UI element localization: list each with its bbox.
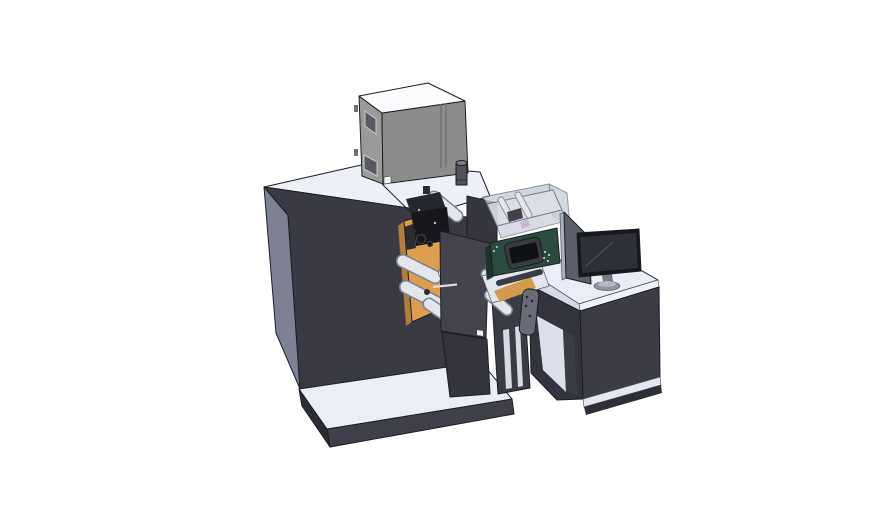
print-head-highlight [434, 222, 436, 224]
roller-end-cap [424, 289, 430, 295]
exhaust-pipe-top [456, 161, 467, 166]
print-head-bracket [423, 186, 430, 194]
print-head-knob [412, 229, 416, 233]
hmi-screw [493, 250, 495, 252]
monitor-base-top [598, 281, 616, 287]
cabinet-hinge [354, 149, 358, 156]
exhaust-pipe [456, 163, 467, 185]
hmi-button[interactable] [548, 254, 550, 256]
hmi-button[interactable] [543, 257, 545, 259]
junction-box-dot [525, 305, 528, 308]
plate-foot-pad [477, 330, 483, 336]
hmi-button[interactable] [544, 251, 546, 253]
plate-support [442, 332, 490, 397]
cad-render-canvas [0, 0, 888, 522]
monitor-screen[interactable] [580, 233, 638, 273]
cabinet-front-face [382, 101, 468, 184]
junction-box-dot [531, 300, 534, 303]
electrical-cabinet [354, 83, 468, 185]
print-head-gear-small [427, 241, 432, 246]
junction-box-dot [526, 296, 529, 299]
print-head-gear [417, 235, 426, 244]
junction-box-dot [529, 315, 532, 318]
cabinet-hinge [354, 105, 358, 112]
render-viewport [0, 0, 888, 522]
cabinet-foot-plate [384, 176, 391, 184]
hmi-button[interactable] [547, 260, 549, 262]
print-head-highlight [418, 209, 420, 211]
hmi-screw [496, 246, 498, 248]
